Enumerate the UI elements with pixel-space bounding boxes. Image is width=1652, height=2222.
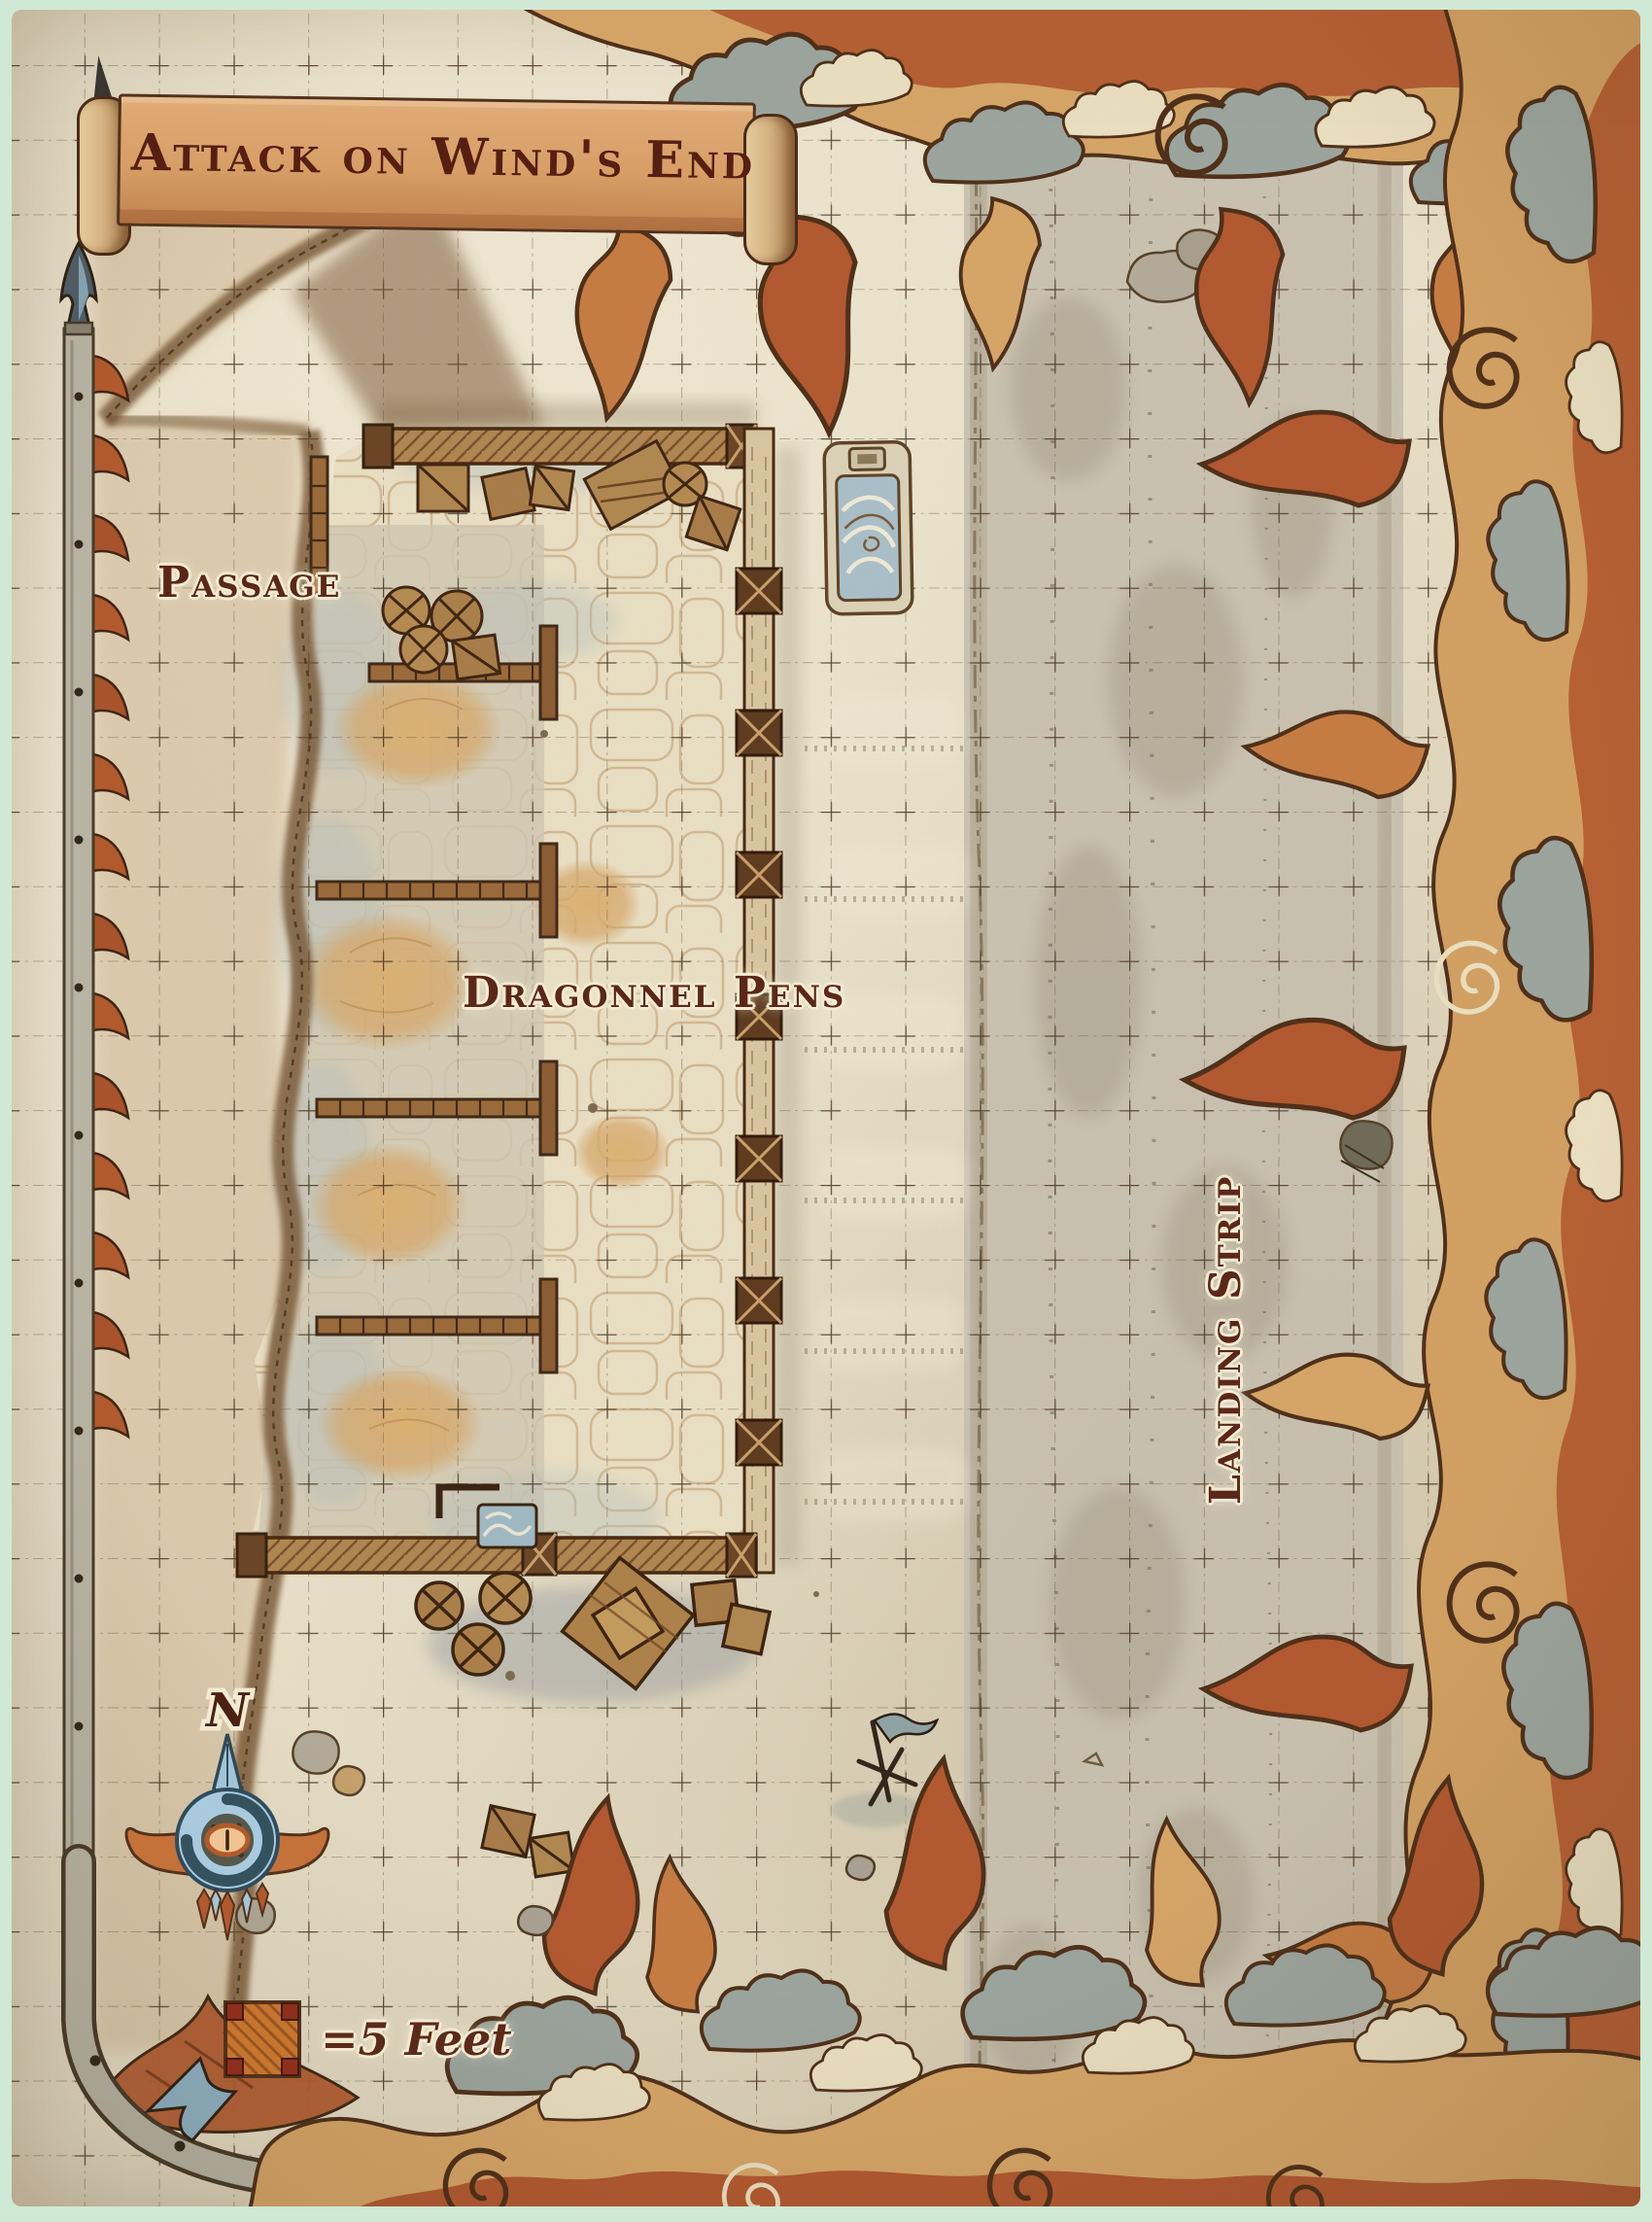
label-landing-strip: Landing Strip <box>1205 1175 1248 1505</box>
scale-square-icon <box>224 2000 301 2078</box>
map-title: Attack on Wind's End <box>131 123 735 191</box>
scale-legend: =5 Feet <box>224 2000 512 2078</box>
compass-art: N <box>120 1641 334 1952</box>
swatch-corner <box>281 2058 299 2076</box>
compass-rose: N <box>120 1641 334 1952</box>
label-dragonnel-pens: Dragonnel Pens <box>463 972 845 1015</box>
swatch-corner <box>281 2002 299 2021</box>
scale-text: =5 Feet <box>321 2013 512 2066</box>
swatch-corner <box>225 2002 244 2021</box>
title-banner: Attack on Wind's End <box>73 53 797 253</box>
compass-north-label: N <box>204 1684 251 1738</box>
battle-map-page: Attack on Wind's End Passage Dragonnel P… <box>0 0 1652 2222</box>
compass-dial <box>177 1789 278 1891</box>
label-passage: Passage <box>157 562 341 605</box>
swatch-corner <box>225 2058 244 2076</box>
